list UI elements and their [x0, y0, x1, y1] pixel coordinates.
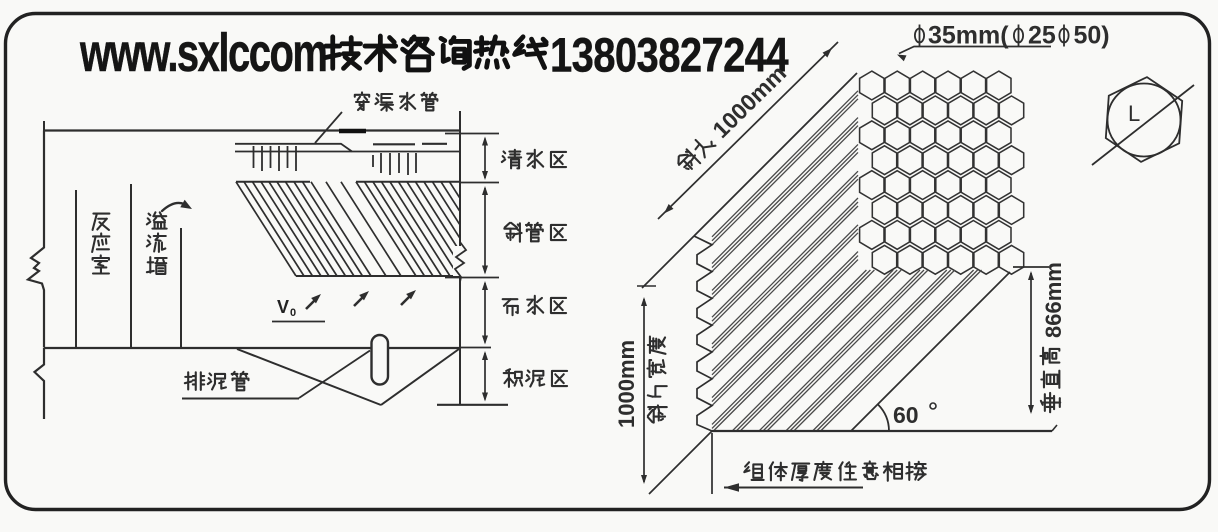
svg-text:35mm(: 35mm(	[928, 22, 1009, 50]
svg-text:13803827244: 13803827244	[550, 29, 789, 82]
svg-text:1000mm: 1000mm	[614, 340, 639, 428]
svg-text:L: L	[1128, 101, 1140, 126]
svg-text:60: 60	[893, 402, 919, 428]
svg-text:0: 0	[290, 307, 296, 319]
svg-text:50): 50)	[1074, 22, 1110, 50]
svg-text:www.sxlccom: www.sxlccom	[79, 23, 326, 83]
svg-text:866mm: 866mm	[1041, 262, 1066, 338]
svg-text:25: 25	[1028, 22, 1056, 50]
svg-text:V: V	[277, 297, 289, 317]
